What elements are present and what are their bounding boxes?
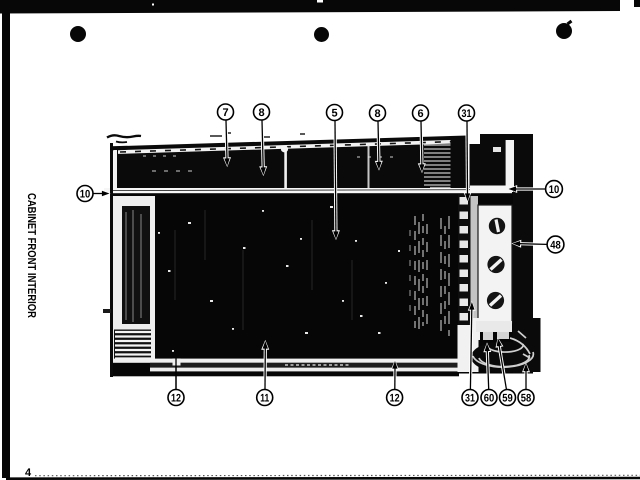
svg-text:8: 8	[258, 107, 264, 119]
svg-text:10: 10	[549, 184, 560, 196]
svg-text:4: 4	[25, 467, 32, 479]
svg-text:48: 48	[550, 239, 561, 251]
svg-text:31: 31	[465, 392, 475, 404]
svg-text:58: 58	[521, 392, 532, 404]
svg-text:59: 59	[502, 392, 513, 404]
svg-text:60: 60	[484, 392, 495, 404]
svg-text:11: 11	[260, 392, 269, 404]
svg-text:7: 7	[222, 107, 228, 119]
svg-text:5: 5	[331, 107, 337, 119]
svg-text:8: 8	[374, 108, 380, 120]
svg-text:10: 10	[80, 188, 91, 200]
svg-text:6: 6	[417, 108, 423, 120]
svg-text:CABINET FRONT INTERIOR: CABINET FRONT INTERIOR	[25, 193, 37, 319]
svg-text:12: 12	[171, 392, 181, 404]
svg-text:12: 12	[390, 392, 400, 404]
svg-text:31: 31	[462, 108, 472, 120]
